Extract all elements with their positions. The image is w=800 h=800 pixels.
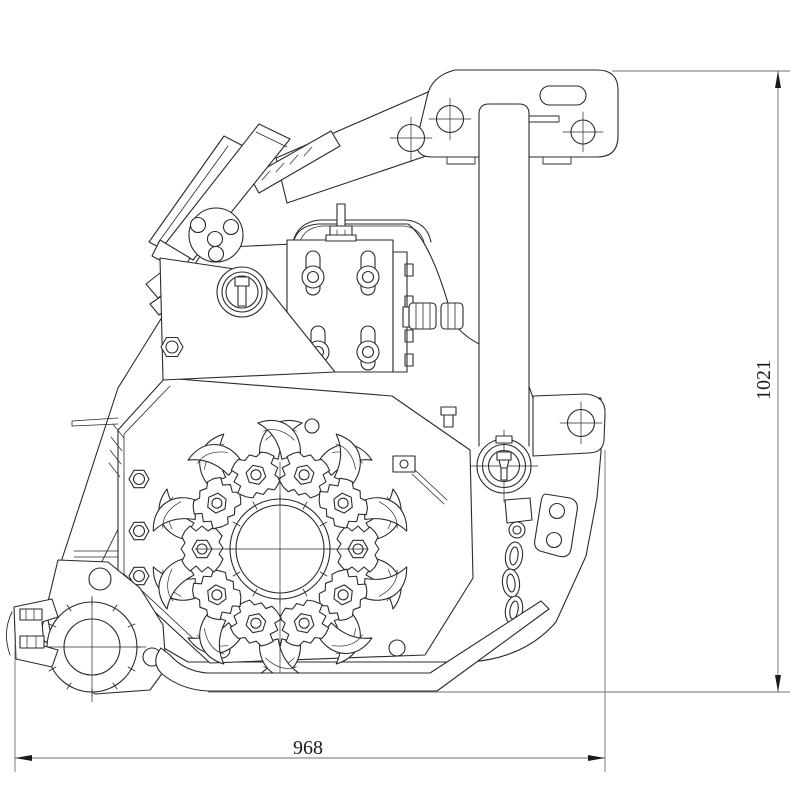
pto-disc [189, 208, 243, 262]
top-bracket-slot [540, 86, 586, 105]
pto-shaft [403, 303, 463, 329]
upper-bearing [217, 267, 267, 317]
plate-latch [393, 456, 415, 472]
gearbox-input-shaft [326, 204, 356, 241]
technical-drawing: 968 1021 [0, 0, 800, 800]
small-hex-bolt [161, 338, 183, 357]
width-dimension-label: 968 [293, 737, 323, 759]
flange-bolt-hole [89, 568, 111, 590]
height-dimension-label: 1021 [753, 360, 775, 400]
mast [479, 104, 529, 446]
machine-linework [6, 70, 618, 702]
drawing-canvas: 968 1021 [0, 0, 800, 800]
